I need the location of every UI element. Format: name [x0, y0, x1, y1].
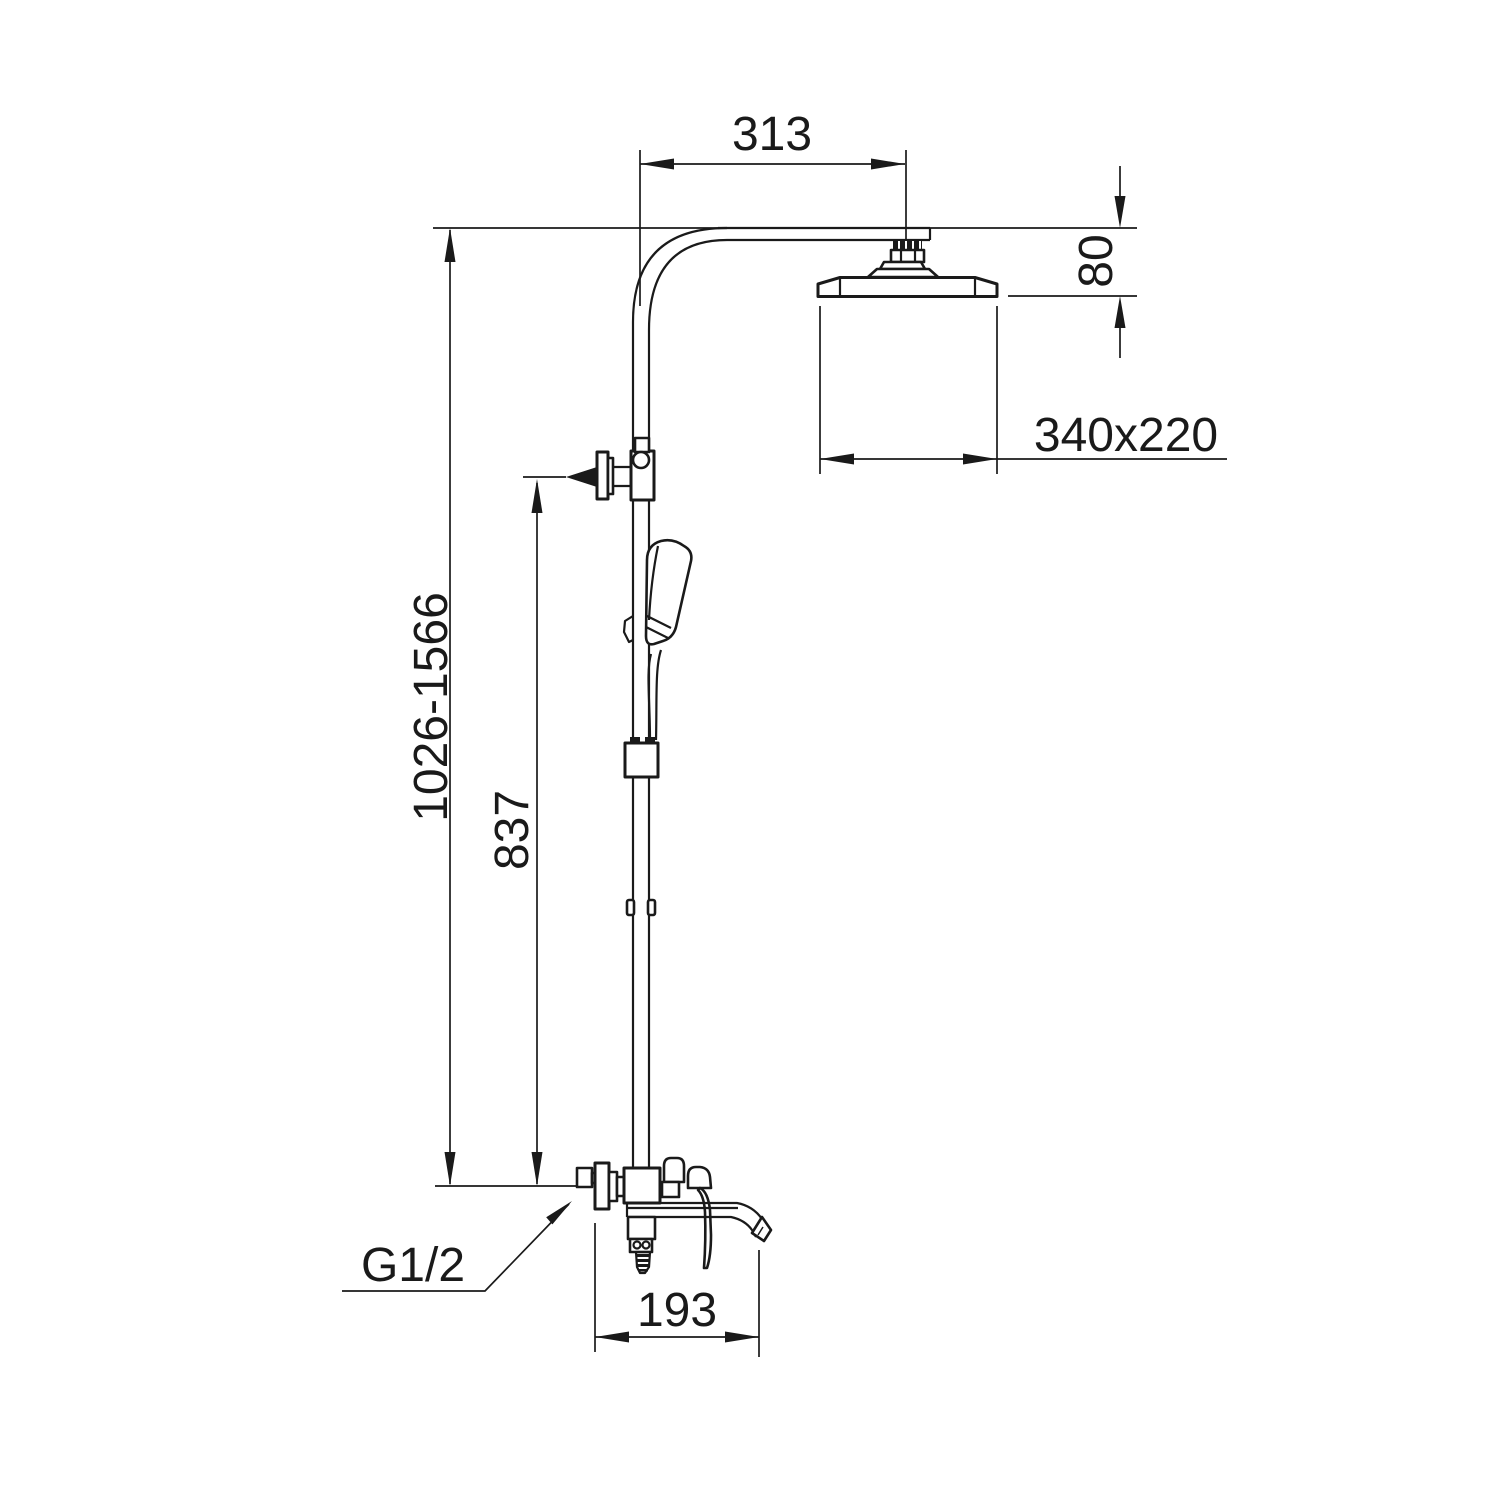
- hose-outlet-connector: [628, 1217, 655, 1273]
- label-arm-offset: 313: [732, 108, 812, 161]
- label-height-range: 1026-1566: [405, 592, 458, 822]
- mixer-flange: [595, 1163, 609, 1209]
- wall-bracket: [597, 438, 654, 500]
- technical-drawing-page: 1026-1566 837 313 80 340x220: [0, 0, 1500, 1500]
- shower-arm: [718, 228, 930, 240]
- mixer-body: [624, 1168, 660, 1203]
- label-head-size: 340x220: [1034, 409, 1218, 462]
- label-head-drop: 80: [1070, 234, 1123, 287]
- dimension-height-range: 1026-1566: [405, 228, 458, 1186]
- callout-thread: G1/2: [342, 1201, 572, 1292]
- dimension-bracket-height: 837: [486, 467, 597, 1186]
- riser-pipe: [627, 228, 727, 1168]
- wall-connector: [577, 1168, 592, 1187]
- hand-shower: [624, 540, 691, 740]
- slider-block: [625, 737, 658, 777]
- label-bracket-height: 837: [486, 790, 539, 870]
- pipe-union-left: [627, 900, 634, 915]
- dimension-head-size: 340x220: [820, 306, 1227, 474]
- dimension-spout-reach: 193: [595, 1223, 759, 1357]
- overhead-shower-head: [818, 240, 997, 297]
- dimension-head-drop: 80: [1008, 166, 1137, 358]
- label-spout-reach: 193: [637, 1284, 717, 1337]
- mixer-lever: [688, 1167, 711, 1188]
- label-thread: G1/2: [361, 1239, 465, 1292]
- shower-column-drawing: 1026-1566 837 313 80 340x220: [0, 0, 1500, 1500]
- bracket-pivot: [633, 452, 649, 468]
- pipe-union-right: [648, 900, 655, 915]
